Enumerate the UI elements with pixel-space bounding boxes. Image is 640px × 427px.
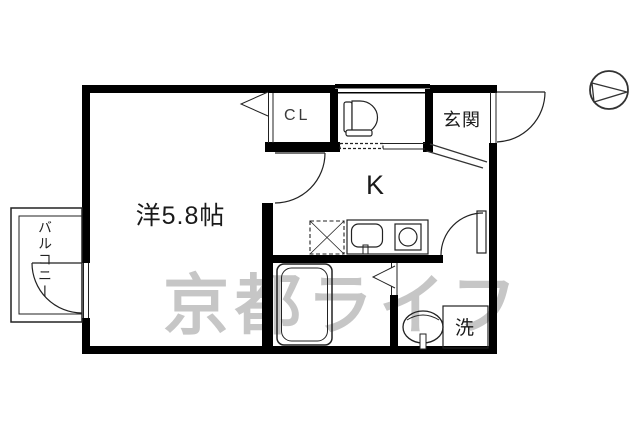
partition-room-cl-b [273,93,274,143]
entrance-step-line-b [427,151,484,168]
kitchen-label: K [366,170,384,201]
stove-burner [399,228,417,246]
bathtub-outer [277,264,332,345]
bath-door-arrow-icon [373,266,395,288]
partition-room-cl-a [268,93,269,143]
compass-icon [590,71,628,109]
closet-label: CL [284,107,310,125]
kitchen-door-arc [275,153,325,203]
wall-cl-toilet [330,89,338,143]
wall-top-left [82,85,335,93]
washbasin-rim [407,315,439,320]
washbasin-icon [403,311,443,349]
wall-room-kitchen [262,203,273,354]
stove-icon [395,224,421,250]
balcony-door-jamb-b [88,263,89,318]
compass-circle [590,71,628,109]
front-door-jamb-b [496,92,497,143]
bath-door-jamb-b [397,263,398,295]
kitchen-sink-bowl [352,224,383,247]
room-door-arrow-icon [241,92,268,116]
toilet-base [346,130,372,136]
front-door-arc [497,92,545,142]
wall-left-upper [82,85,90,263]
western-room-label: 洋5.8帖 [108,196,253,232]
fixtures [11,71,628,349]
wall-top-window-inner [335,92,430,94]
toilet-window-line-b [383,149,425,150]
floorplan-drawing [0,0,640,427]
toilet-bowl [352,101,377,134]
balcony-label: バルコニー [35,220,55,328]
washbasin-faucet [420,334,426,349]
wall-cl-bottom [265,142,340,152]
kitchen-sink-icon [347,220,428,254]
toilet-sliding-door [340,144,383,149]
balcony-door-jamb-a [83,263,84,318]
entrance-step-line-a [430,144,487,162]
bathtub-icon [277,264,332,345]
toilet-window-line-a [383,143,425,144]
refrigerator-icon [310,221,344,254]
entrance-label: 玄関 [443,106,481,132]
bathtub-inner [282,268,328,341]
wall-kitchen-bottom [262,255,443,263]
toilet-icon [344,101,377,136]
wall-top-window-outer [335,84,430,89]
laundry-label: 洗 [455,313,474,340]
wall-top-right [430,85,497,93]
front-door-jamb-a [490,92,491,143]
wall-bottom [82,346,497,354]
floorplan-canvas: 京都ライフ [0,0,640,427]
wall-right-top-stub [489,85,497,92]
wall-bath-washroom [390,295,398,346]
entrance-step [427,144,488,168]
wall-right [489,143,497,354]
kitchen-faucet [363,245,368,254]
washroom-door-leaf [477,211,486,253]
kitchen-counter [347,220,428,254]
compass-needle [592,83,627,102]
toilet-tank [344,102,352,132]
